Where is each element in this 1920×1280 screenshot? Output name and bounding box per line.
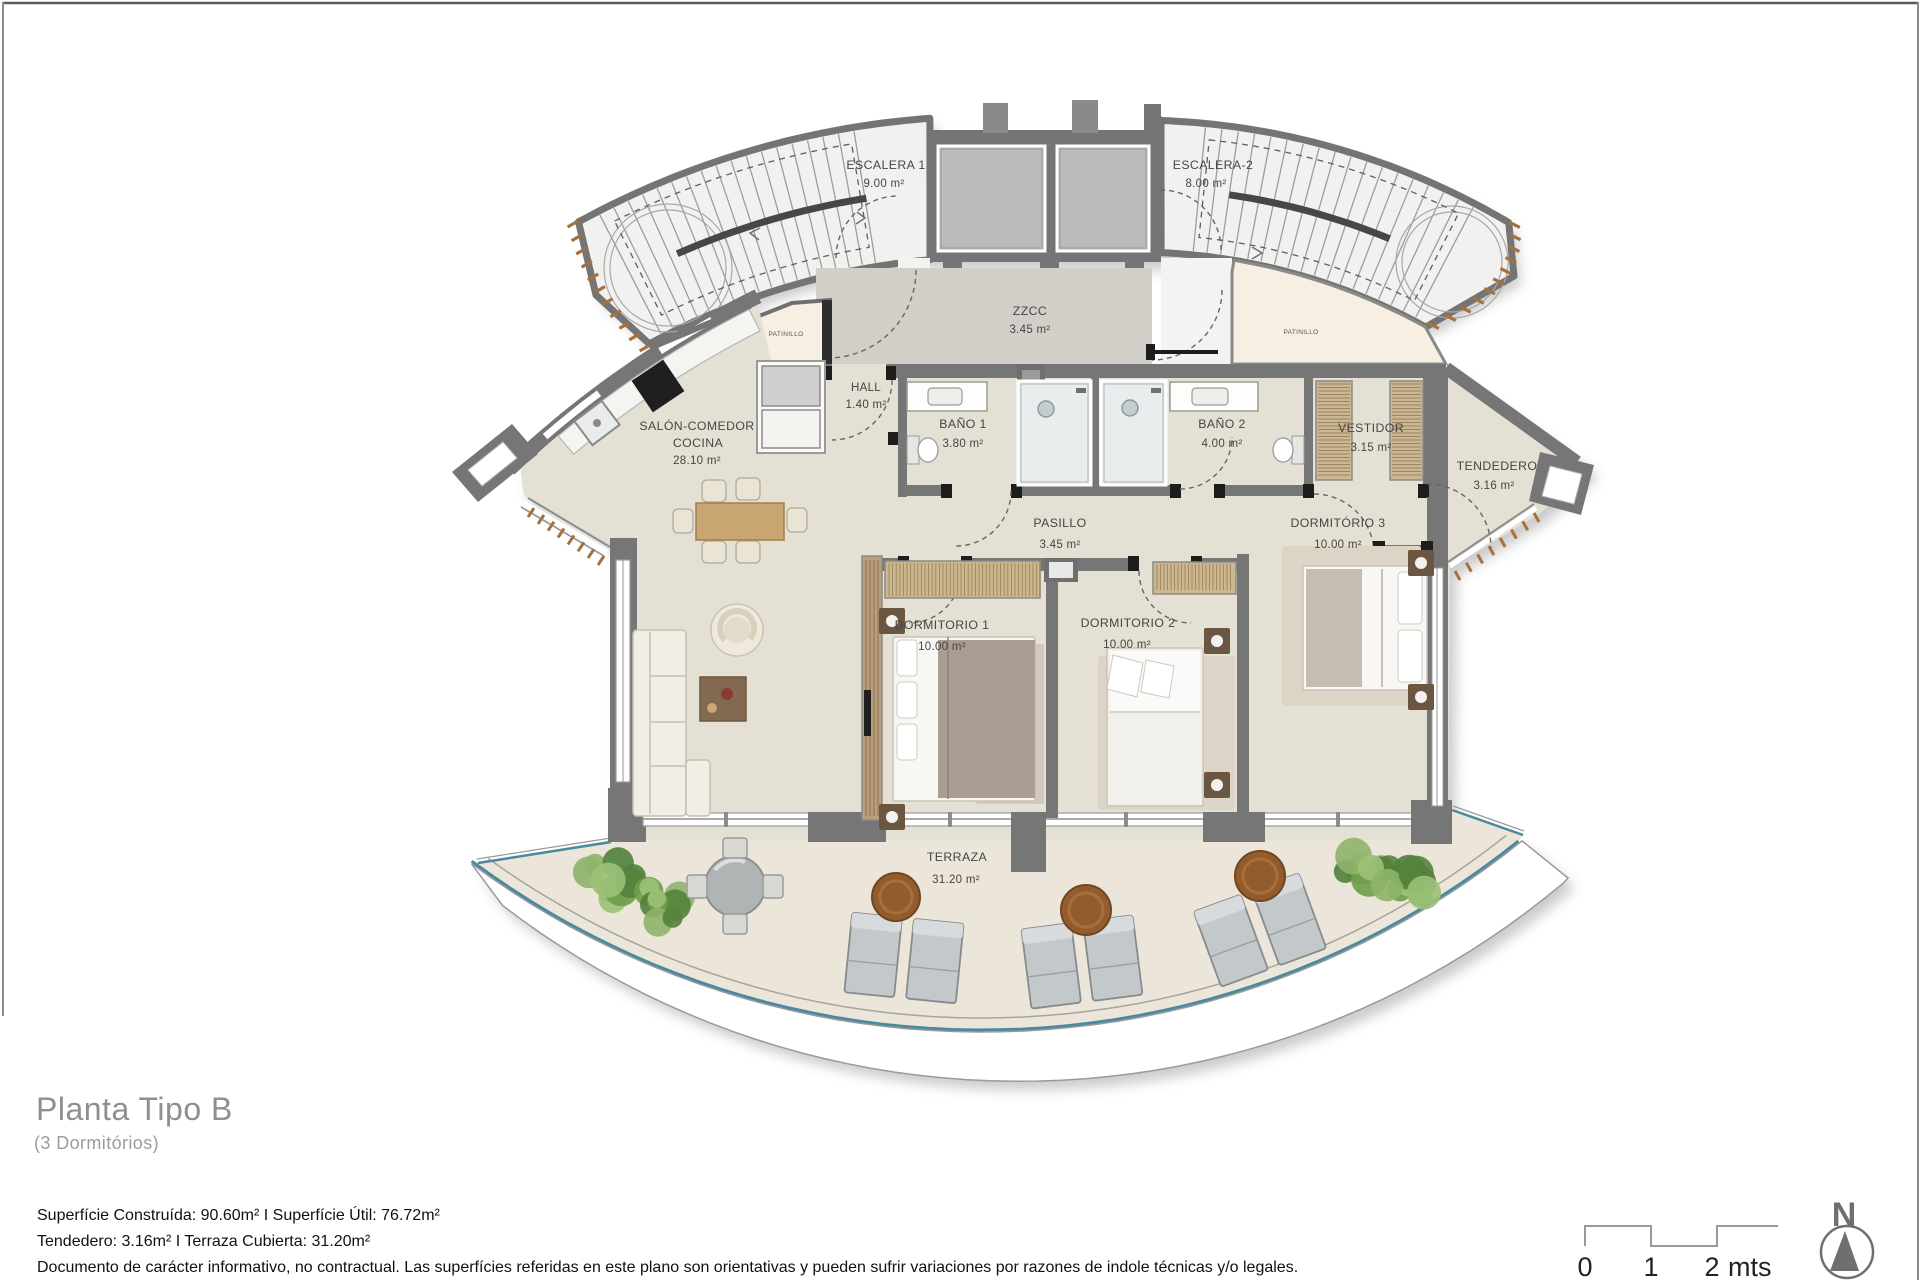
svg-text:SALÓN-COMEDOR: SALÓN-COMEDOR	[639, 418, 754, 433]
svg-text:Documento de carácter informat: Documento de carácter informativo, no co…	[37, 1259, 1298, 1276]
svg-text:3.16 m²: 3.16 m²	[1473, 480, 1514, 492]
svg-text:3.80 m²: 3.80 m²	[942, 438, 983, 450]
svg-text:10.00 m²: 10.00 m²	[918, 641, 966, 653]
svg-text:Superfície Construída: 90.60m²: Superfície Construída: 90.60m² I Superfí…	[37, 1205, 441, 1224]
svg-text:TENDEDERO: TENDEDERO	[1457, 459, 1538, 473]
svg-text:8.00 m²: 8.00 m²	[1185, 178, 1226, 190]
svg-text:Tendedero: 3.16m² I Terraza Cu: Tendedero: 3.16m² I Terraza Cubierta: 31…	[37, 1233, 371, 1250]
svg-text:mts: mts	[1728, 1252, 1772, 1280]
svg-text:VESTIDOR: VESTIDOR	[1338, 421, 1404, 435]
svg-text:COCINA: COCINA	[673, 436, 724, 450]
svg-text:10.00 m²: 10.00 m²	[1314, 539, 1362, 551]
svg-text:0: 0	[1577, 1252, 1592, 1280]
svg-text:DORMITORIO 1: DORMITORIO 1	[895, 618, 990, 632]
svg-text:HALL: HALL	[851, 382, 881, 394]
svg-text:ZZCC: ZZCC	[1013, 304, 1047, 318]
svg-text:ESCALERA 1: ESCALERA 1	[846, 158, 925, 172]
svg-text:10.00 m²: 10.00 m²	[1103, 639, 1151, 651]
svg-text:BAÑO 1: BAÑO 1	[939, 417, 987, 431]
svg-text:3.15 m²: 3.15 m²	[1350, 442, 1391, 454]
svg-text:3.45 m²: 3.45 m²	[1009, 324, 1050, 336]
svg-text:4.00 m²: 4.00 m²	[1201, 438, 1242, 450]
svg-text:DORMITÓRIO 3: DORMITÓRIO 3	[1291, 515, 1386, 530]
svg-text:2: 2	[1704, 1252, 1719, 1280]
svg-text:1.40 m²: 1.40 m²	[845, 399, 886, 411]
svg-text:(3 Dormitórios): (3 Dormitórios)	[34, 1133, 159, 1153]
svg-text:DORMITORIO 2: DORMITORIO 2	[1081, 616, 1176, 630]
svg-text:PATINILLO: PATINILLO	[769, 331, 804, 338]
svg-text:Planta Tipo B: Planta Tipo B	[36, 1091, 233, 1127]
svg-text:PATINILLO: PATINILLO	[1284, 329, 1319, 336]
svg-text:3.45 m²: 3.45 m²	[1039, 539, 1080, 551]
svg-text:1: 1	[1643, 1252, 1658, 1280]
svg-text:31.20 m²: 31.20 m²	[932, 874, 980, 886]
svg-text:9.00 m²: 9.00 m²	[863, 178, 904, 190]
svg-text:TERRAZA: TERRAZA	[927, 850, 988, 864]
svg-text:PASILLO: PASILLO	[1033, 516, 1086, 530]
svg-text:28.10 m²: 28.10 m²	[673, 455, 721, 467]
svg-text:BAÑO 2: BAÑO 2	[1198, 417, 1246, 431]
svg-text:ESCALERA-2: ESCALERA-2	[1173, 158, 1254, 172]
